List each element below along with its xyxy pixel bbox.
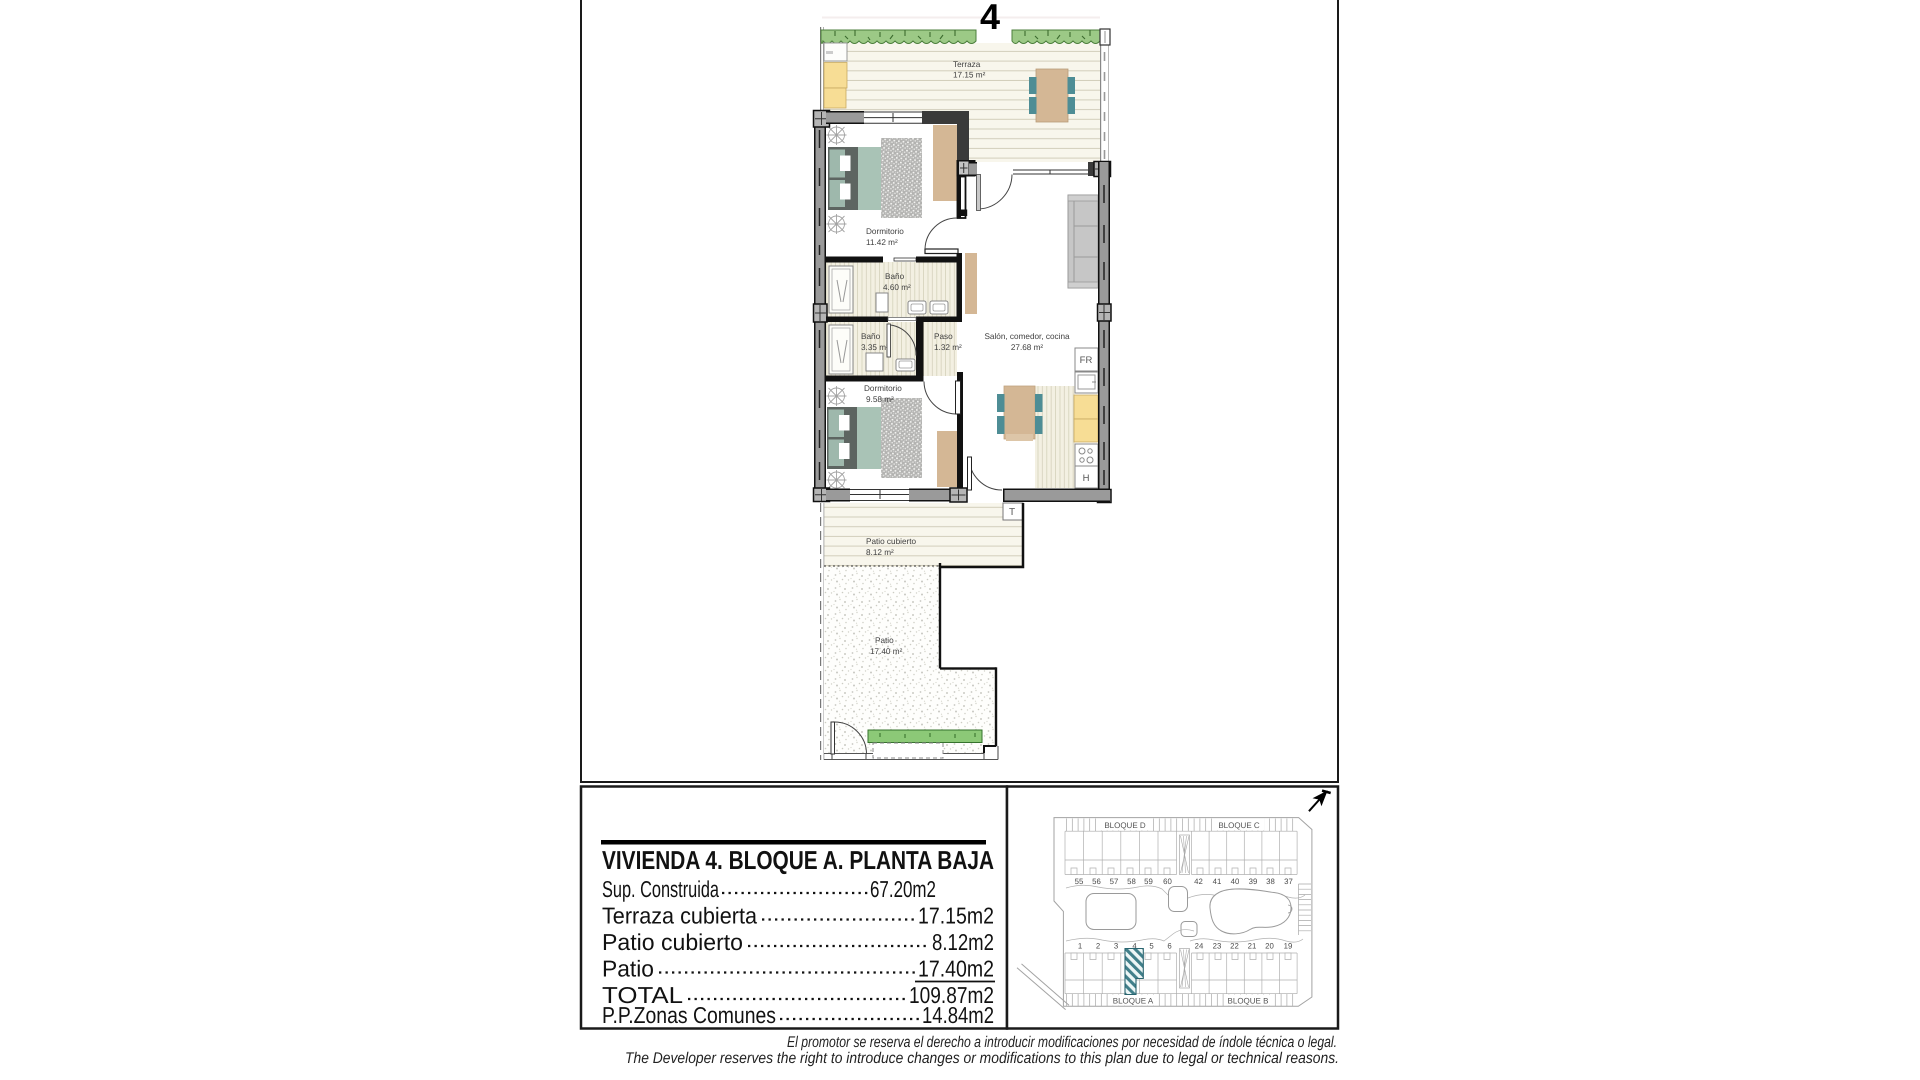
svg-text:Dormitorio: Dormitorio (866, 227, 904, 236)
svg-text:67.20m2: 67.20m2 (870, 876, 936, 902)
svg-text:Paso: Paso (934, 332, 953, 341)
svg-text:Baño: Baño (861, 332, 881, 341)
svg-text:3.35 m²: 3.35 m² (861, 343, 889, 352)
svg-text:El promotor se reserva el dere: El promotor se reserva el derecho a intr… (787, 1034, 1337, 1051)
svg-text:41: 41 (1213, 877, 1222, 886)
svg-text:The Developer reserves the rig: The Developer reserves the right to intr… (625, 1050, 1339, 1067)
svg-text:14.84m2: 14.84m2 (922, 1002, 994, 1028)
svg-text:55: 55 (1075, 877, 1084, 886)
svg-text:8.12 m²: 8.12 m² (866, 548, 894, 557)
svg-text:9.58 m²: 9.58 m² (866, 395, 894, 404)
svg-text:4: 4 (980, 0, 1000, 37)
svg-text:6: 6 (1167, 942, 1171, 951)
svg-text:1: 1 (1078, 942, 1082, 951)
svg-text:Terraza: Terraza (953, 60, 981, 69)
svg-text:8.12m2: 8.12m2 (932, 929, 994, 955)
svg-text:Patio: Patio (602, 956, 654, 982)
svg-text:Patio cubierto: Patio cubierto (866, 537, 917, 546)
svg-text:BLOQUE B: BLOQUE B (1228, 997, 1269, 1006)
svg-text:38: 38 (1266, 877, 1275, 886)
svg-text:17.15m2: 17.15m2 (918, 903, 994, 929)
svg-text:P.P.Zonas Comunes: P.P.Zonas Comunes (602, 1002, 776, 1028)
svg-text:42: 42 (1194, 877, 1203, 886)
svg-text:VIVIENDA 4. BLOQUE A. PLANTA B: VIVIENDA 4. BLOQUE A. PLANTA BAJA (602, 845, 994, 875)
svg-text:Salón, comedor, cocina: Salón, comedor, cocina (984, 332, 1070, 341)
svg-text:FR: FR (1080, 355, 1093, 366)
svg-text:3: 3 (1114, 942, 1118, 951)
svg-text:17.15 m²: 17.15 m² (953, 71, 986, 80)
svg-text:17.40m2: 17.40m2 (918, 956, 994, 982)
svg-text:24: 24 (1195, 942, 1204, 951)
svg-text:21: 21 (1248, 942, 1257, 951)
svg-text:27.68 m²: 27.68 m² (1011, 343, 1044, 352)
svg-text:40: 40 (1231, 877, 1240, 886)
svg-text:Patio: Patio (875, 636, 894, 645)
svg-text:20: 20 (1265, 942, 1274, 951)
svg-text:19: 19 (1284, 942, 1293, 951)
svg-text:22: 22 (1230, 942, 1239, 951)
svg-text:Dormitorio: Dormitorio (864, 384, 902, 393)
svg-text:11.42 m²: 11.42 m² (866, 238, 898, 247)
svg-text:5: 5 (1149, 942, 1154, 951)
svg-text:BLOQUE D: BLOQUE D (1104, 821, 1146, 830)
svg-text:2: 2 (1096, 942, 1100, 951)
svg-text:1.32 m²: 1.32 m² (934, 343, 962, 352)
svg-text:17.40 m²: 17.40 m² (870, 647, 903, 656)
svg-text:Sup. Construida: Sup. Construida (602, 876, 719, 902)
svg-text:BLOQUE C: BLOQUE C (1218, 821, 1260, 830)
svg-text:23: 23 (1213, 942, 1222, 951)
svg-text:37: 37 (1284, 877, 1293, 886)
svg-text:39: 39 (1249, 877, 1258, 886)
svg-text:58: 58 (1127, 877, 1136, 886)
svg-text:Baño: Baño (885, 272, 905, 281)
svg-text:56: 56 (1092, 877, 1101, 886)
svg-text:T: T (1009, 507, 1015, 518)
svg-text:60: 60 (1163, 877, 1172, 886)
svg-text:BLOQUE A: BLOQUE A (1113, 997, 1154, 1006)
svg-text:59: 59 (1144, 877, 1153, 886)
svg-text:Terraza cubierta: Terraza cubierta (602, 903, 757, 929)
svg-text:Patio cubierto: Patio cubierto (602, 929, 743, 955)
svg-text:4.60 m²: 4.60 m² (883, 283, 911, 292)
svg-text:H: H (1083, 473, 1090, 484)
svg-text:57: 57 (1110, 877, 1119, 886)
